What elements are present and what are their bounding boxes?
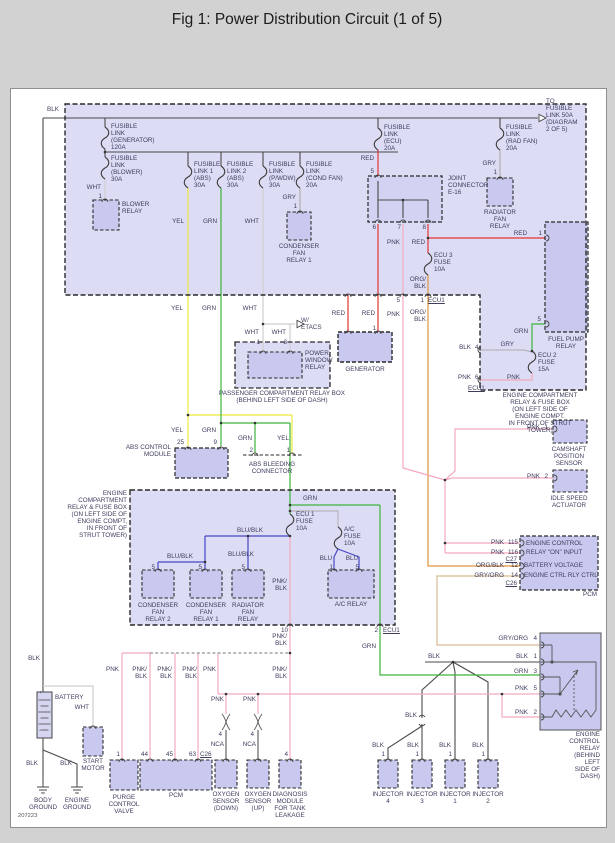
wire-label-yel-in: YEL xyxy=(172,218,184,225)
wire-label-blk-batt: BLK xyxy=(28,655,40,662)
pin-idle-2: 2 xyxy=(544,473,548,480)
pin-ecr-3: 3 xyxy=(533,668,537,675)
pin-oxup-4: 4 xyxy=(250,731,254,738)
wire-label-grn-below: GRN xyxy=(202,305,216,312)
wire-label-blk-4: BLK xyxy=(459,344,471,351)
wire-label-blublk-3: BLU/BLK xyxy=(228,551,254,558)
pin-diag-4: 4 xyxy=(284,751,288,758)
jc-pin-8: 8 xyxy=(422,224,426,231)
pin-box1-1: 1 xyxy=(420,297,424,304)
radiator-fan-relay2-label: RADIATOR FAN RELAY xyxy=(232,602,264,623)
pin-cfr2-5: 5 xyxy=(151,564,155,571)
wire-label-pnk-2: PNK xyxy=(515,709,528,716)
wire-label-grn-c: GRN xyxy=(362,643,376,650)
wire-label-gryorg-4: GRY/ORG xyxy=(498,635,528,642)
pcm-label-bottom: PCM xyxy=(169,792,183,799)
passenger-box-label: PASSENGER COMPARTMENT RELAY BOX (BEHIND … xyxy=(219,390,345,404)
pin-pwr-3: 3 xyxy=(283,339,287,346)
pcm-label-right: PCM xyxy=(583,591,597,598)
wire-label-pnkblk-box2: PNK/ BLK xyxy=(272,578,287,592)
wire-label-blk-i3: BLK xyxy=(407,742,419,749)
wire-label-grn-box2: GRN xyxy=(303,495,317,502)
pin-box2-2: 2 xyxy=(374,627,378,634)
wire-label-orgblk-mid: ORG/ BLK xyxy=(410,309,426,323)
nca-label-up: NCA xyxy=(243,741,256,748)
wire-label-red-ecu: RED xyxy=(361,155,374,162)
wire-label-yel-bleed: YEL xyxy=(277,435,289,442)
wire-label-gry-condfan: GRY xyxy=(282,194,296,201)
wire-label-blk-h: BLK xyxy=(428,653,440,660)
injector4-label: INJECTOR 4 xyxy=(372,791,403,805)
pin-abs-9: 9 xyxy=(213,439,217,446)
wire-label-blublk-1: BLU/BLK xyxy=(237,527,263,534)
ecu3-fuse-label: ECU 3 FUSE 10A xyxy=(434,252,453,273)
wire-label-gryorg-14: GRY/ORG xyxy=(474,572,504,579)
pin-inj1-1: 1 xyxy=(448,751,452,758)
wire-label-gry-radfan: GRY xyxy=(482,160,496,167)
pin-camshaft-1: 1 xyxy=(544,424,548,431)
pin-pcm-63: 63 xyxy=(189,751,196,758)
wire-label-pnk-cam: PNK xyxy=(527,424,540,431)
wire-label-pnkblk-44: PNK/ BLK xyxy=(132,666,147,680)
pin-pcm-116: 116 xyxy=(508,549,518,556)
jc-pin-5: 5 xyxy=(370,168,374,175)
pin-purge-1: 1 xyxy=(116,751,120,758)
pin-ecr-1: 1 xyxy=(533,653,537,660)
pin-bleed-1: 1 xyxy=(286,447,290,454)
purge-valve-label: PURGE CONTROL VALVE xyxy=(109,794,140,815)
wire-label-pnk-6: PNK xyxy=(458,374,471,381)
fusible-link-radfan-label: FUSIBLE LINK (RAD FAN) 20A xyxy=(506,124,537,152)
wire-label-wht-in: WHT xyxy=(245,218,259,225)
camshaft-sensor-label: CAMSHAFT POSITION SENSOR xyxy=(552,446,587,467)
pcm-row-engine-control: ENGINE CONTROL xyxy=(526,540,583,547)
pin-radfan-1: 1 xyxy=(493,169,497,176)
power-window-relay-label: POWER WINDOW RELAY xyxy=(305,350,333,371)
blower-relay-label: BLOWER RELAY xyxy=(122,201,149,215)
pin-oxdown-4: 4 xyxy=(218,731,222,738)
wire-label-pnk-ecu2: PNK xyxy=(507,374,520,381)
battery-plus: + xyxy=(39,691,42,697)
wire-label-orgblk-12: ORG/BLK xyxy=(476,562,504,569)
fusible-link-generator-label: FUSIBLE LINK (GENERATOR) 120A xyxy=(111,123,155,151)
connector-ecu1-a: ECU1 xyxy=(468,385,485,392)
pin-box1-4: 4 xyxy=(475,344,479,351)
pcm-row-relay-on-input: RELAY "ON" INPUT xyxy=(526,549,582,556)
pin-inj2-1: 1 xyxy=(481,751,485,758)
pin-ecr-2: 2 xyxy=(533,709,537,716)
wire-label-blk-eng: BLK xyxy=(60,760,72,767)
wire-label-wht-batt: WHT xyxy=(75,704,89,711)
wire-label-pnk-mid: PNK xyxy=(387,311,400,318)
pin-pcm-44: 44 xyxy=(141,751,148,758)
wire-label-blk-top: BLK xyxy=(47,106,59,113)
pcm-row-engine-ctrl-rly: ENGINE CTRL RLY CTRL xyxy=(524,572,598,579)
wire-label-gry-ecu2: GRY xyxy=(500,341,514,348)
pin-ecr-4: 4 xyxy=(533,635,537,642)
connector-ecu1-c: ECU1 xyxy=(383,627,400,634)
fusible-link-pwdw-label: FUSIBLE LINK (P/WDW) 30A xyxy=(269,161,296,189)
fusible-link-condfan-label: FUSIBLE LINK (COND FAN) 20A xyxy=(306,161,343,189)
body-ground-label: BODY GROUND xyxy=(29,797,57,811)
wire-label-red-gen2: RED xyxy=(362,310,375,317)
w-etacs-note: W/ ETACS xyxy=(301,317,322,331)
pin-pcm-45: 45 xyxy=(166,751,173,758)
wire-label-blk-body: BLK xyxy=(26,760,38,767)
condenser-fan-relay1b-label: CONDENSER FAN RELAY 1 xyxy=(186,602,226,623)
wire-label-pnk-5: PNK xyxy=(515,685,528,692)
wire-label-blublk-2: BLU/BLK xyxy=(167,553,193,560)
pin-fuelpump-5: 5 xyxy=(537,316,541,323)
to-fusible-link-note: TO FUSIBLE LINK 50A (DIAGRAM 2 OF 5) xyxy=(546,98,578,133)
pin-bleed-2: 2 xyxy=(249,447,253,454)
pin-acrelay-1: 1 xyxy=(329,564,333,571)
wire-label-blk-i4: BLK xyxy=(372,742,384,749)
wire-label-wht-blower: WHT xyxy=(87,184,101,191)
pin-inj4-1: 1 xyxy=(381,751,385,758)
pin-blower-1: 1 xyxy=(98,193,102,200)
wire-label-blk-1: BLK xyxy=(516,653,528,660)
idle-actuator-label: IDLE SPEED ACTUATOR xyxy=(550,495,587,509)
wire-label-yel-below: YEL xyxy=(171,305,183,312)
wire-label-wht-pw3: WHT xyxy=(272,329,286,336)
pin-pcm-14: 14 xyxy=(511,572,518,579)
ecu1-fuse-label: ECU 1 FUSE 10A xyxy=(296,511,315,532)
box2-label: ENGINE COMPARTMENT RELAY & FUSE BOX (ON … xyxy=(67,490,127,539)
wire-label-blk-conn: BLK xyxy=(405,712,417,719)
pcm-row-battery-voltage: BATTERY VOLTAGE xyxy=(524,562,583,569)
wire-label-pnk-oxup: PNK xyxy=(243,696,256,703)
ac-relay-label: A/C RELAY xyxy=(335,601,367,608)
jc-pin-6: 6 xyxy=(372,224,376,231)
wire-label-pnk-idle: PNK xyxy=(527,473,540,480)
wire-label-blk-i1: BLK xyxy=(439,742,451,749)
wire-label-grn-3: GRN xyxy=(514,668,528,675)
fusible-link-abs1-label: FUSIBLE LINK 1 (ABS) 30A xyxy=(194,161,220,189)
fuel-pump-relay-label: FUEL PUMP RELAY xyxy=(548,336,584,350)
pin-acrelay-5: 5 xyxy=(355,564,359,571)
joint-connector-label: JOINT CONNECTOR E-16 xyxy=(448,175,488,196)
wire-label-pnk-jc: PNK xyxy=(387,239,400,246)
connector-ecu1-b: ECU1 xyxy=(428,297,445,304)
abs-control-module-label: ABS CONTROL MODULE xyxy=(126,444,171,458)
wire-label-pnk-purge: PNK xyxy=(106,666,119,673)
pin-condfan-1: 1 xyxy=(293,203,297,210)
wire-label-wht-below: WHT xyxy=(243,305,257,312)
page: { "title": "Fig 1: Power Distribution Ci… xyxy=(0,0,615,843)
wire-label-red-jc: RED xyxy=(412,239,425,246)
connector-c26-b: C26 xyxy=(200,751,212,758)
engine-ground-label: ENGINE GROUND xyxy=(63,797,91,811)
generator-label: GENERATOR xyxy=(345,366,384,373)
pin-box1-6: 6 xyxy=(475,374,479,381)
injector2-label: INJECTOR 2 xyxy=(472,791,503,805)
ac-fuse-label: A/C FUSE 10A xyxy=(344,526,361,547)
wire-label-blu-l: BLU xyxy=(320,555,332,562)
abs-bleeding-label: ABS BLEEDING CONNECTOR xyxy=(249,461,295,475)
fusible-link-abs2-label: FUSIBLE LINK 2 (ABS) 30A xyxy=(227,161,253,189)
pin-abs-25: 25 xyxy=(177,439,184,446)
wire-label-pnkblk-c: PNK/ BLK xyxy=(272,666,287,680)
pin-pcm-12: 12 xyxy=(511,562,518,569)
diagnosis-module-label: DIAGNOSIS MODULE FOR TANK LEAKAGE xyxy=(273,791,308,819)
battery-minus: - xyxy=(39,729,41,735)
pin-pwr-1: 1 xyxy=(256,339,260,346)
battery-label: BATTERY xyxy=(55,694,83,701)
pin-ecr-5: 5 xyxy=(533,685,537,692)
wire-label-grn-abs: GRN xyxy=(202,427,216,434)
injector3-label: INJECTOR 3 xyxy=(406,791,437,805)
condenser-fan-relay2-label: CONDENSER FAN RELAY 2 xyxy=(138,602,178,623)
document-number: 207223 xyxy=(18,813,37,819)
radiator-fan-relay-label: RADIATOR FAN RELAY xyxy=(484,209,516,230)
pin-fuelpump-1: 1 xyxy=(538,230,542,237)
wire-label-wht-pw1: WHT xyxy=(245,329,259,336)
start-motor-label: START MOTOR xyxy=(81,758,104,772)
jc-pin-7: 7 xyxy=(397,224,401,231)
wire-label-pnkblk-63: PNK/ BLK xyxy=(182,666,197,680)
pin-pcm-115: 115 xyxy=(508,539,518,546)
oxygen-up-label: OXYGEN SENSOR (UP) xyxy=(245,791,272,812)
wire-label-blk-i2: BLK xyxy=(472,742,484,749)
wire-label-blu-r: BLU xyxy=(346,555,358,562)
ecu2-fuse-label: ECU 2 FUSE 15A xyxy=(538,352,557,373)
fusible-link-blower-label: FUSIBLE LINK (BLOWER) 30A xyxy=(111,155,143,183)
pin-box1-5: 5 xyxy=(396,297,400,304)
fusible-link-ecu-label: FUSIBLE LINK (ECU) 20A xyxy=(384,124,410,152)
pin-inj3-1: 1 xyxy=(415,751,419,758)
engine-control-relay-label: ENGINE CONTROL RELAY (BEHIND LEFT SIDE O… xyxy=(569,731,600,780)
wire-label-red-fuelpump: RED xyxy=(514,230,527,237)
wire-label-yel-abs: YEL xyxy=(171,427,183,434)
pin-generator-1: 1 xyxy=(372,325,376,332)
wire-label-pnkblk-b: PNK/ BLK xyxy=(272,633,287,647)
wire-label-grn-in: GRN xyxy=(203,218,217,225)
wire-label-pnkblk-45: PNK/ BLK xyxy=(157,666,172,680)
injector1-label: INJECTOR 1 xyxy=(439,791,470,805)
wire-label-pnk-116: PNK xyxy=(491,549,504,556)
wire-label-grn-fuelpump: GRN xyxy=(514,328,528,335)
wire-label-orgblk-a: ORG/ BLK xyxy=(410,276,426,290)
wire-label-pnk-115: PNK xyxy=(491,539,504,546)
nca-label-down: NCA xyxy=(211,741,224,748)
oxygen-down-label: OXYGEN SENSOR (DOWN) xyxy=(213,791,240,812)
wire-label-pnk-oxdown: PNK xyxy=(211,696,224,703)
wire-label-red-gen1: RED xyxy=(332,310,345,317)
wire-label-grn-bleed: GRN xyxy=(238,435,252,442)
pin-rfr-5: 5 xyxy=(241,564,245,571)
pin-cfr1-5: 5 xyxy=(198,564,202,571)
connector-c26-a: C26 xyxy=(505,580,517,587)
condenser-fan-relay1-label: CONDENSER FAN RELAY 1 xyxy=(279,243,319,264)
wire-label-pnk-ox: PNK xyxy=(203,666,216,673)
